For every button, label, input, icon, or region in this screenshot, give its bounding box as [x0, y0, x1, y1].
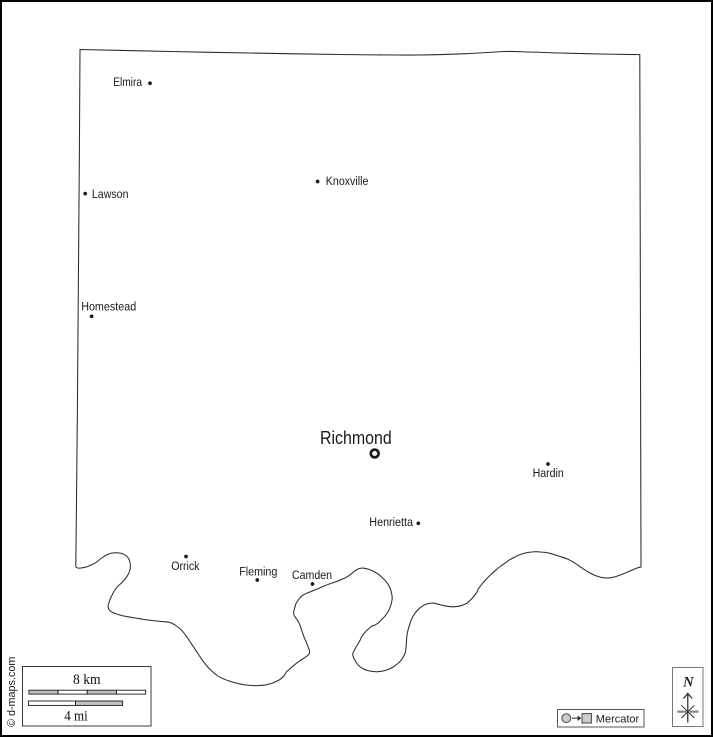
- svg-text:Fleming: Fleming: [239, 565, 277, 579]
- svg-text:Lawson: Lawson: [92, 187, 129, 201]
- svg-text:N: N: [682, 674, 694, 690]
- svg-text:Richmond: Richmond: [320, 427, 392, 448]
- svg-text:Elmira: Elmira: [113, 75, 142, 89]
- svg-text:4 mi: 4 mi: [64, 709, 88, 725]
- svg-text:Henrietta: Henrietta: [369, 515, 413, 529]
- svg-text:Knoxville: Knoxville: [326, 174, 369, 188]
- svg-text:Mercator: Mercator: [596, 713, 640, 725]
- svg-text:Orrick: Orrick: [171, 559, 200, 573]
- svg-text:8 km: 8 km: [73, 672, 101, 688]
- svg-text:Homestead: Homestead: [81, 300, 136, 314]
- svg-text:© d-maps.com: © d-maps.com: [6, 657, 18, 727]
- svg-text:Camden: Camden: [292, 568, 332, 582]
- svg-text:Hardin: Hardin: [533, 466, 564, 480]
